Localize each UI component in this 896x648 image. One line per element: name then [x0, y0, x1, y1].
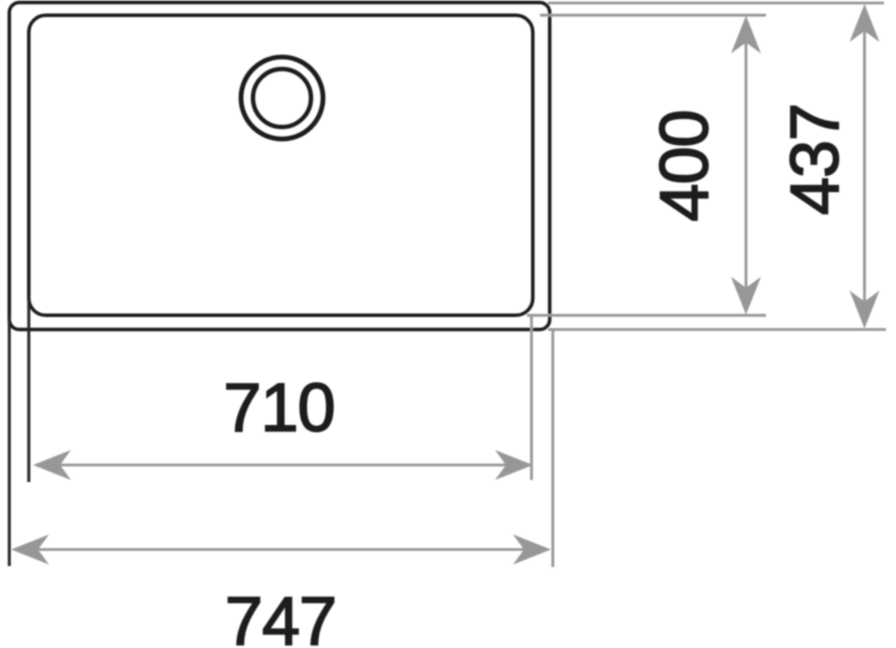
svg-text:400: 400 [646, 110, 723, 221]
svg-text:437: 437 [776, 104, 853, 215]
svg-text:710: 710 [223, 369, 334, 446]
svg-text:747: 747 [225, 583, 336, 648]
